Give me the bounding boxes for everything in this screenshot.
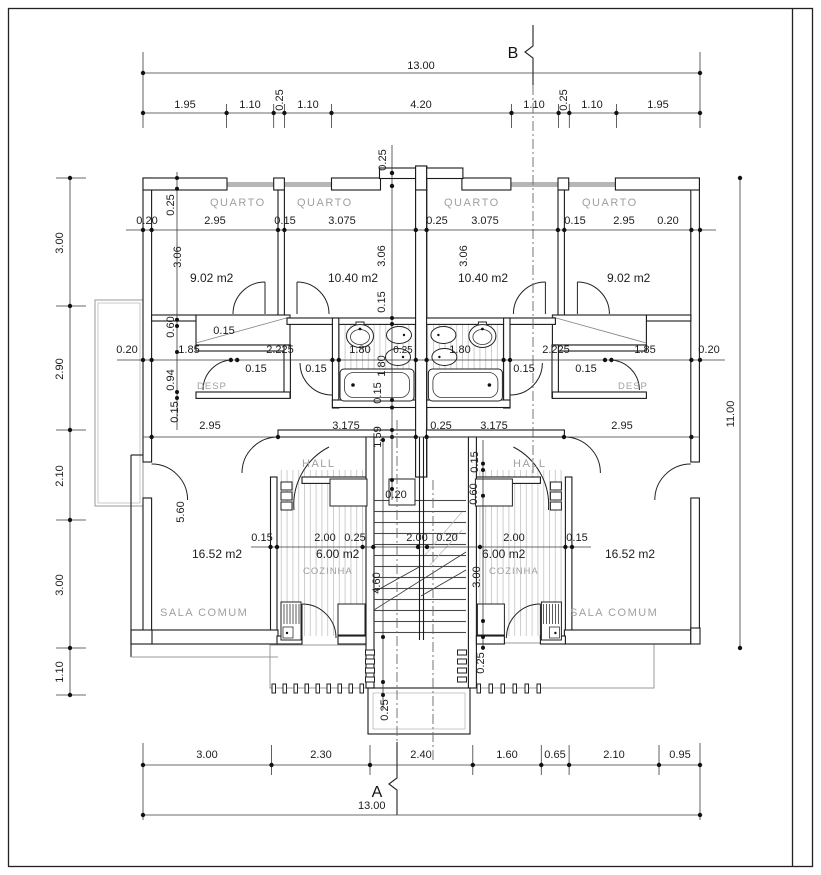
room-area: 6.00 m2 xyxy=(316,547,360,561)
dim: 1.10 xyxy=(239,99,260,111)
labels: B 13.00 1.95 1.10 0.25 1.10 4.20 1.10 0.… xyxy=(54,45,737,812)
dim: 0.25 xyxy=(393,345,413,356)
dim: 0.25 xyxy=(165,194,177,215)
room-area: 10.40 m2 xyxy=(328,271,378,285)
dim: 2.95 xyxy=(611,420,632,432)
dim: 0.65 xyxy=(544,749,565,761)
dim: 0.20 xyxy=(385,489,406,501)
dim: 0.15 xyxy=(251,532,272,544)
dim: 2.225 xyxy=(542,344,570,356)
room-area: 9.02 m2 xyxy=(607,271,651,285)
dim: 0.25 xyxy=(475,652,487,673)
dim: 0.25 xyxy=(379,699,391,720)
dim: 1.10 xyxy=(54,661,66,682)
dim: 4.20 xyxy=(410,99,431,111)
dim: 2.40 xyxy=(410,749,431,761)
dim: 4.60 xyxy=(371,572,383,593)
dim-right-total: 11.00 xyxy=(725,401,737,428)
dim: 0.15 xyxy=(513,363,534,375)
room-label-sala-comum: SALA COMUM xyxy=(570,607,658,619)
dim: 1.10 xyxy=(297,99,318,111)
room-area: 16.52 m2 xyxy=(605,547,655,561)
dim-top-total: 13.00 xyxy=(407,60,435,72)
room-label-desp: DESP xyxy=(618,381,648,392)
dim: 1.85 xyxy=(178,344,199,356)
dim: 1.95 xyxy=(174,99,195,111)
dim: 3.06 xyxy=(172,246,184,267)
room-area: 16.52 m2 xyxy=(192,547,242,561)
room-label-quarto: QUARTO xyxy=(210,197,266,209)
dim: 0.15 xyxy=(564,215,585,227)
dim: 2.95 xyxy=(613,215,634,227)
dim: 0.20 xyxy=(436,532,457,544)
dim: 2.00 xyxy=(503,532,524,544)
room-label-cozinha: COZINHA xyxy=(489,566,539,577)
room-label-quarto: QUARTO xyxy=(444,197,500,209)
room-label-sala-comum: SALA COMUM xyxy=(160,607,248,619)
room-label-quarto: QUARTO xyxy=(582,197,638,209)
dim: 1.59 xyxy=(372,426,384,447)
dim: 0.25 xyxy=(430,420,451,432)
dim: 2.95 xyxy=(199,420,220,432)
dim: 1.85 xyxy=(634,344,655,356)
room-label-hall: HALL xyxy=(513,458,547,470)
terrace-right xyxy=(474,643,654,688)
room-label-cozinha: COZINHA xyxy=(303,566,353,577)
dim: 0.15 xyxy=(469,451,481,472)
dim: 0.15 xyxy=(169,401,181,422)
dim: 2.30 xyxy=(310,749,331,761)
room-label-hall: HALL xyxy=(302,458,336,470)
dim: 3.00 xyxy=(471,566,483,587)
room-area: 10.40 m2 xyxy=(458,271,508,285)
dim-bottom-total: 13.00 xyxy=(358,800,386,812)
room-label-desp: DESP xyxy=(197,381,227,392)
dim: 2.225 xyxy=(266,344,294,356)
section-b-label: B xyxy=(508,45,519,62)
toilet xyxy=(387,327,412,344)
dim: 2.90 xyxy=(54,358,66,379)
exterior-stair xyxy=(95,300,143,506)
floor-plan-drawing: B 13.00 1.95 1.10 0.25 1.10 4.20 1.10 0.… xyxy=(0,0,821,875)
dim: 0.25 xyxy=(274,89,286,110)
dim: 0.20 xyxy=(136,215,157,227)
dim: 0.25 xyxy=(426,215,447,227)
dim: 1.60 xyxy=(496,749,517,761)
dim: 0.60 xyxy=(165,316,177,337)
dim: 3.00 xyxy=(196,749,217,761)
dim: 0.20 xyxy=(657,215,678,227)
dim: 0.20 xyxy=(116,344,137,356)
terrace-left xyxy=(270,645,366,688)
section-lines xyxy=(389,25,533,815)
dim: 5.60 xyxy=(175,501,187,522)
dim: 2.10 xyxy=(54,465,66,486)
dim: 0.15 xyxy=(274,215,295,227)
dim: 0.25 xyxy=(344,532,365,544)
dim: 3.06 xyxy=(458,245,470,266)
dim: 0.15 xyxy=(376,291,388,312)
dim: 1.80 xyxy=(349,344,370,356)
dim: 2.95 xyxy=(204,215,225,227)
dim: 3.075 xyxy=(471,215,499,227)
dim: 1.80 xyxy=(376,355,388,376)
dim: 1.10 xyxy=(523,99,544,111)
dim: 3.175 xyxy=(332,420,360,432)
dim: 0.95 xyxy=(669,749,690,761)
dim: 1.80 xyxy=(449,344,470,356)
room-area: 9.02 m2 xyxy=(190,271,234,285)
dim: 2.10 xyxy=(603,749,624,761)
dim: 0.20 xyxy=(698,344,719,356)
dim: 0.15 xyxy=(575,363,596,375)
dim: 0.15 xyxy=(213,325,234,337)
dim: 0.15 xyxy=(245,363,266,375)
dim: 0.15 xyxy=(566,532,587,544)
dim: 0.60 xyxy=(468,483,480,504)
dim: 2.00 xyxy=(314,532,335,544)
room-label-quarto: QUARTO xyxy=(297,197,353,209)
dim: 0.25 xyxy=(377,149,389,170)
section-a-label: A xyxy=(372,784,383,801)
dim: 3.075 xyxy=(328,215,356,227)
dim: 3.00 xyxy=(54,574,66,595)
dim: 1.95 xyxy=(647,99,668,111)
dim: 0.15 xyxy=(305,363,326,375)
dim: 0.15 xyxy=(372,382,384,403)
dim: 0.25 xyxy=(558,89,570,110)
dim: 3.00 xyxy=(54,232,66,253)
room-area: 6.00 m2 xyxy=(482,547,526,561)
dim: 1.10 xyxy=(581,99,602,111)
dim: 2.00 xyxy=(406,532,427,544)
dim: 3.06 xyxy=(376,245,388,266)
dim: 3.175 xyxy=(480,420,508,432)
dim: 0.94 xyxy=(165,369,177,390)
